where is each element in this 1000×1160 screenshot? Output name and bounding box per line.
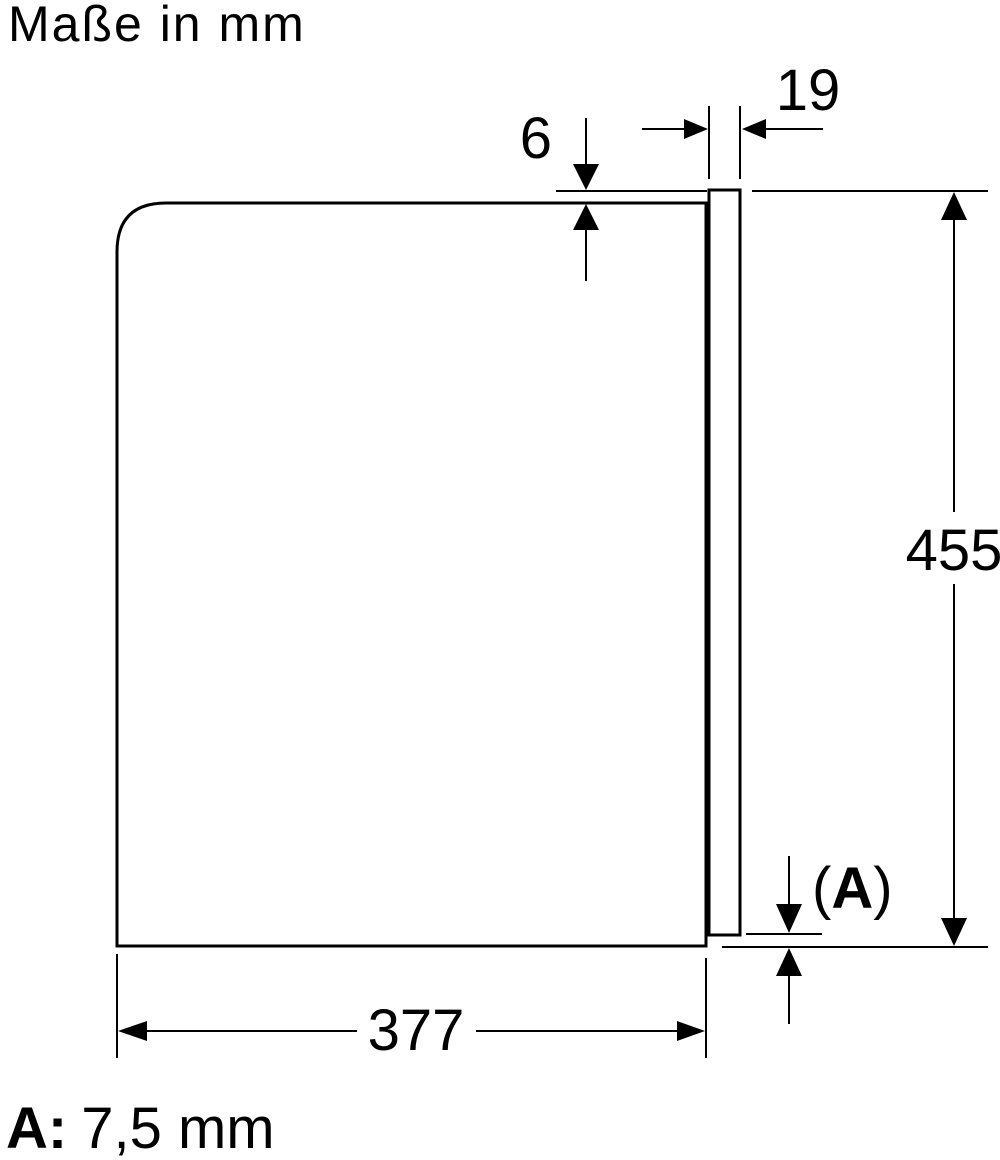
dim-455-label: 455 (906, 518, 1000, 583)
arrow-right-icon (684, 119, 708, 139)
dim-a-label: (A) (812, 856, 893, 921)
footnote-value: 7,5 mm (81, 1096, 274, 1160)
appliance-dimension-diagram: Maße in mm 6 19 455 (A) (0, 0, 1000, 1160)
dimension-drawing-page: Maße in mm 6 19 455 (A) (0, 0, 1000, 1160)
arrow-down-icon (776, 904, 802, 933)
dim-a-paren-open: ( (812, 856, 831, 921)
footnote-label: A: (6, 1096, 67, 1160)
arrow-left-icon (742, 119, 766, 139)
arrow-down-icon (573, 164, 599, 190)
dim-6-label: 6 (520, 106, 552, 171)
arrow-left-icon (118, 1021, 147, 1041)
arrow-right-icon (677, 1021, 705, 1041)
appliance-body-outline (117, 203, 706, 946)
arrow-up-icon (776, 948, 802, 976)
dim-a-letter: A (831, 856, 873, 921)
door-panel (709, 190, 740, 935)
dim-19-label: 19 (776, 58, 841, 123)
footnote: A:7,5 mm (6, 1096, 275, 1160)
arrow-down-icon (941, 918, 967, 946)
dim-a-paren-close: ) (873, 856, 892, 921)
arrow-up-icon (941, 192, 967, 220)
page-title: Maße in mm (8, 0, 306, 52)
dim-377-label: 377 (368, 998, 465, 1063)
